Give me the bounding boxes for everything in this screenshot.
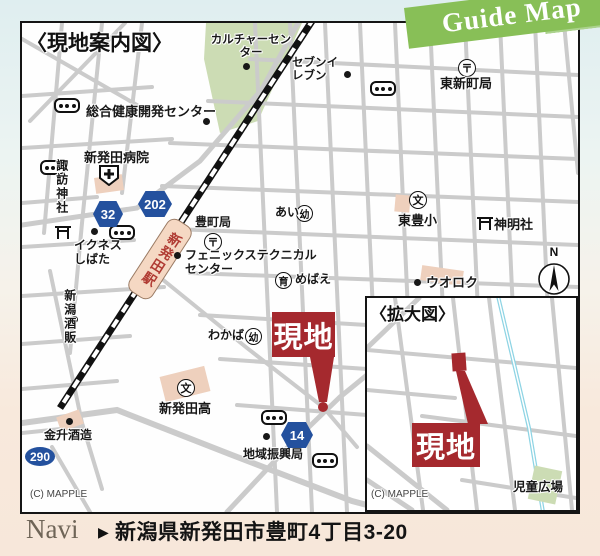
poi-label-toyomachi-po: 豊町局	[195, 216, 231, 230]
inset-map: 〈拡大図〉 現地 児童広場 (C) MAPPLE	[365, 296, 578, 512]
inset-map-credit: (C) MAPPLE	[371, 489, 428, 500]
poi-dot-culture-center	[243, 63, 250, 70]
kindergarten-icon: 幼	[245, 328, 262, 345]
compass-rose: N	[536, 242, 572, 302]
torii-gate-icon	[55, 225, 71, 239]
poi-label-mebae: めばえ	[295, 273, 331, 287]
main-map-credit: (C) MAPPLE	[30, 489, 87, 500]
traffic-light-icon	[312, 453, 338, 468]
inset-canvas	[367, 298, 576, 510]
traffic-light-icon	[370, 81, 396, 96]
main-map-title: 〈現地案内図〉	[26, 27, 173, 57]
navi-label: Navi	[26, 514, 78, 545]
inset-map-title: 〈拡大図〉	[370, 300, 455, 325]
main-map: 〈現地案内図〉 (C) MAPPLE 新発田駅 カルチャーセンター セブンイレブ…	[20, 21, 580, 514]
poi-label-niigata-shuhan: 新潟酒販	[62, 289, 76, 345]
guide-map-page: { "banner": { "text": "Guide Map" }, "ma…	[0, 0, 600, 556]
traffic-light-icon	[54, 98, 80, 113]
poi-dot-kanemasu	[66, 418, 73, 425]
poi-label-iknes: イクネスしばた	[74, 239, 130, 267]
inset-callout-tail	[456, 371, 488, 424]
navi-address: 新潟県新発田市豊町4丁目3-20	[115, 516, 408, 546]
poi-label-shibata-hospital: 新発田病院	[84, 151, 149, 166]
poi-dot-uoroku	[414, 279, 421, 286]
site-dot	[318, 402, 328, 412]
poi-label-culture-center: カルチャーセンター	[208, 34, 294, 60]
poi-label-wakaba: わかば	[208, 329, 244, 343]
poi-label-sogo-kenko: 総合健康開発センター	[86, 105, 216, 120]
navi-arrow-icon: ▶	[98, 524, 109, 541]
poi-dot-chiiki	[263, 433, 270, 440]
poi-label-shinmei-shrine: 神明社	[494, 218, 533, 233]
compass-north-label: N	[550, 245, 559, 259]
poi-label-seven-eleven: セブンイレブン	[292, 57, 344, 83]
inset-site-square	[451, 353, 466, 372]
poi-label-shibata-high: 新発田高	[159, 402, 211, 417]
poi-dot-seven-eleven	[344, 71, 351, 78]
poi-dot-iknes	[91, 228, 98, 235]
poi-label-chiiki-shinkokyoku: 地域振興局	[243, 448, 303, 462]
poi-label-uoroku: ウオロク	[426, 276, 478, 291]
site-callout: 現地	[272, 312, 335, 357]
post-office-icon: 〒	[458, 59, 476, 77]
poi-label-higashi-shinmachi-po: 東新町局	[440, 77, 492, 92]
route-badge-290: 290	[25, 447, 55, 466]
torii-gate-icon	[477, 216, 493, 230]
site-callout-tail	[310, 357, 334, 402]
poi-label-kanemasu: 金升酒造	[44, 429, 92, 443]
poi-label-higashi-toyo-elem: 東豊小	[398, 214, 437, 229]
school-icon: 文	[177, 379, 195, 397]
inset-site-callout: 現地	[412, 423, 480, 467]
poi-label-ai-kindergarten: あい	[275, 206, 299, 220]
traffic-light-icon	[261, 410, 287, 425]
hospital-icon	[99, 165, 119, 186]
poi-label-suwa-shrine: 諏訪神社	[54, 159, 68, 215]
school-icon: 文	[409, 191, 427, 209]
poi-dot-phoenix	[174, 252, 181, 259]
inset-park-label: 児童広場	[513, 480, 563, 494]
